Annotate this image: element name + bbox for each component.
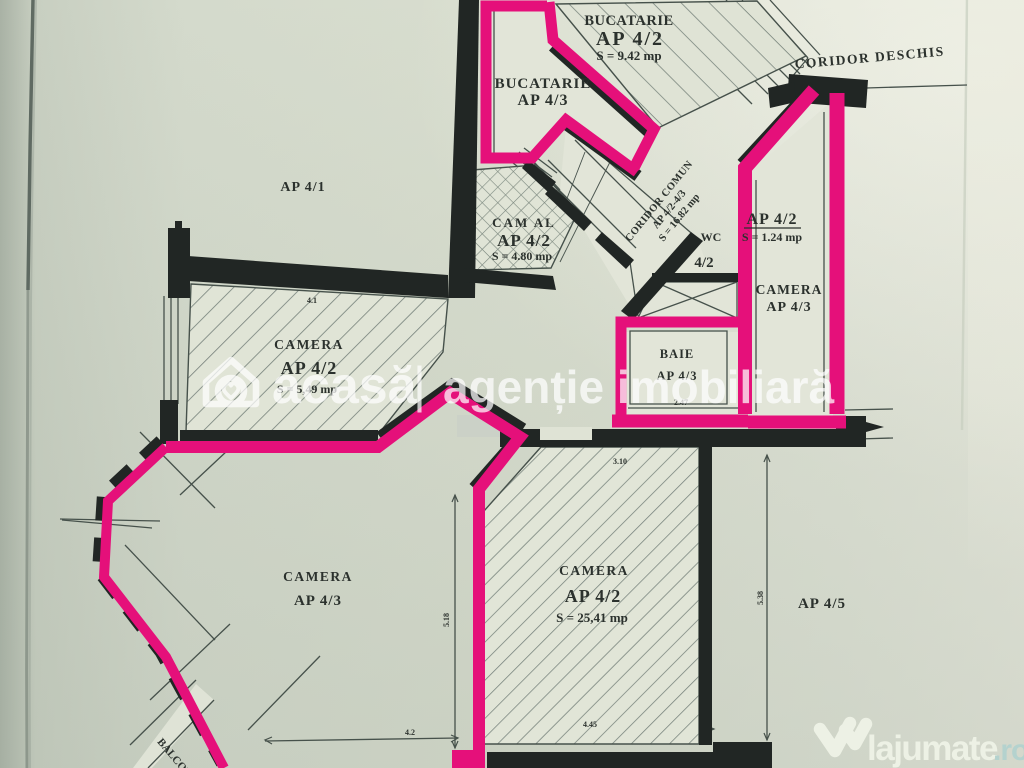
- svg-text:3.10: 3.10: [613, 457, 627, 466]
- svg-text:BUCATARIE: BUCATARIE: [495, 76, 592, 92]
- svg-text:4.2: 4.2: [405, 728, 415, 737]
- svg-text:AP 4/2: AP 4/2: [497, 231, 551, 250]
- svg-text:4.1: 4.1: [307, 296, 317, 305]
- svg-text:5.38: 5.38: [756, 591, 765, 605]
- svg-text:lajumate: lajumate: [867, 729, 998, 768]
- svg-text:acasă: acasă: [272, 357, 418, 415]
- svg-text:S = 1.24 mp: S = 1.24 mp: [742, 230, 803, 244]
- svg-text:S = 4.80 mp: S = 4.80 mp: [492, 249, 553, 263]
- svg-text:CAMERA: CAMERA: [756, 282, 823, 297]
- svg-text:AP 4/3: AP 4/3: [518, 92, 569, 109]
- svg-text:4/2: 4/2: [694, 255, 713, 271]
- svg-text:AP 4/1: AP 4/1: [280, 180, 325, 195]
- svg-text:WC: WC: [701, 230, 722, 244]
- svg-text:BAIE: BAIE: [660, 347, 695, 361]
- svg-text:|: |: [413, 357, 426, 413]
- svg-text:5.18: 5.18: [442, 613, 451, 627]
- svg-text:AP 4/3: AP 4/3: [766, 300, 811, 315]
- svg-text:AP 4/2: AP 4/2: [565, 586, 622, 606]
- svg-text:4.45: 4.45: [583, 720, 597, 729]
- svg-text:.ro: .ro: [993, 734, 1024, 767]
- svg-text:AP 4/3: AP 4/3: [294, 593, 342, 609]
- svg-text:BUCATARIE: BUCATARIE: [584, 13, 673, 29]
- svg-text:AP 4/2: AP 4/2: [747, 211, 798, 228]
- svg-text:CAMERA: CAMERA: [559, 563, 629, 578]
- svg-text:CAMERA: CAMERA: [283, 569, 353, 584]
- svg-text:AP 4/2: AP 4/2: [596, 28, 664, 50]
- svg-text:AP 4/5: AP 4/5: [798, 596, 846, 612]
- svg-text:CAMERA: CAMERA: [274, 337, 344, 352]
- svg-text:S = 9.42 mp: S = 9.42 mp: [596, 48, 661, 63]
- svg-text:S = 25,41 mp: S = 25,41 mp: [556, 610, 628, 625]
- svg-text:CAM AL: CAM AL: [492, 215, 556, 230]
- svg-text:agenție imobiliară: agenție imobiliară: [443, 361, 835, 414]
